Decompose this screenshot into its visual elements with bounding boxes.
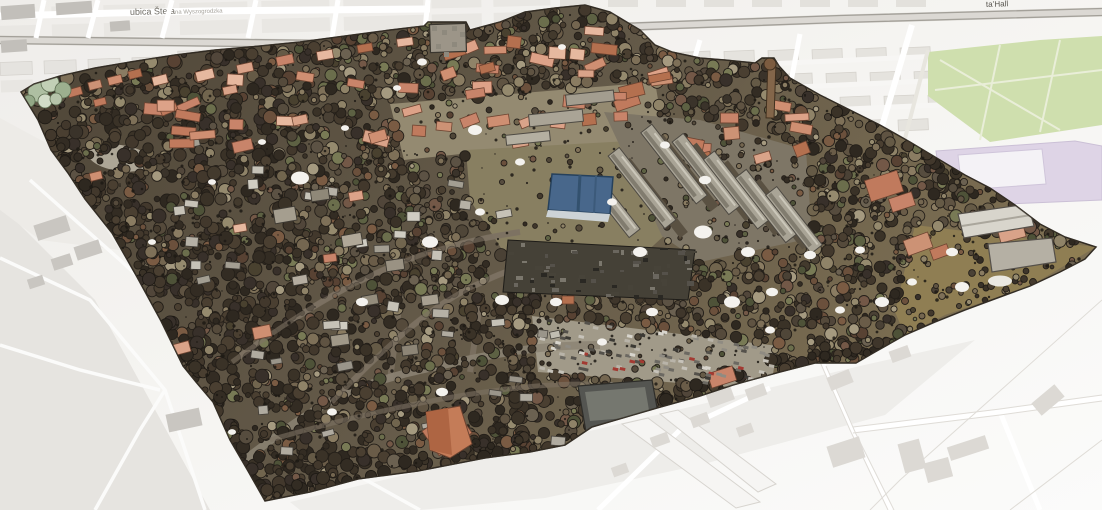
- svg-text:ta’Hall: ta’Hall: [986, 0, 1009, 9]
